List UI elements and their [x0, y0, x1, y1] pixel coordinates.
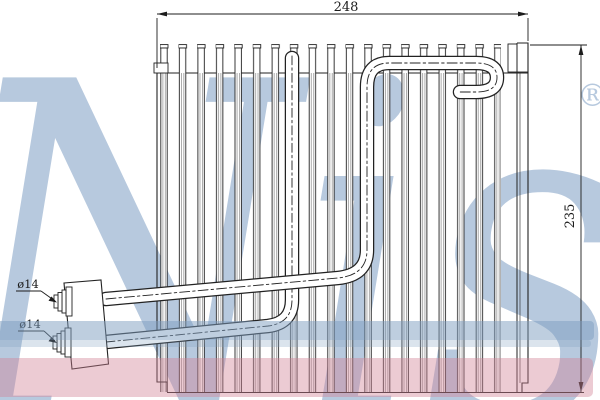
- drawing-canvas: Nissens ®: [0, 0, 600, 400]
- registered-trademark-icon: ®: [577, 78, 600, 114]
- pipe-top-diameter-label: ø14: [17, 277, 39, 291]
- pipe-bottom-diameter-label: ø14: [19, 317, 41, 331]
- core-fins: [160, 73, 501, 392]
- core-left-tab: [154, 63, 168, 73]
- dimension-width-label: 248: [334, 0, 359, 15]
- evaporator-technical-drawing: Nissens ®: [0, 0, 600, 400]
- dimension-height-label: 235: [563, 204, 578, 229]
